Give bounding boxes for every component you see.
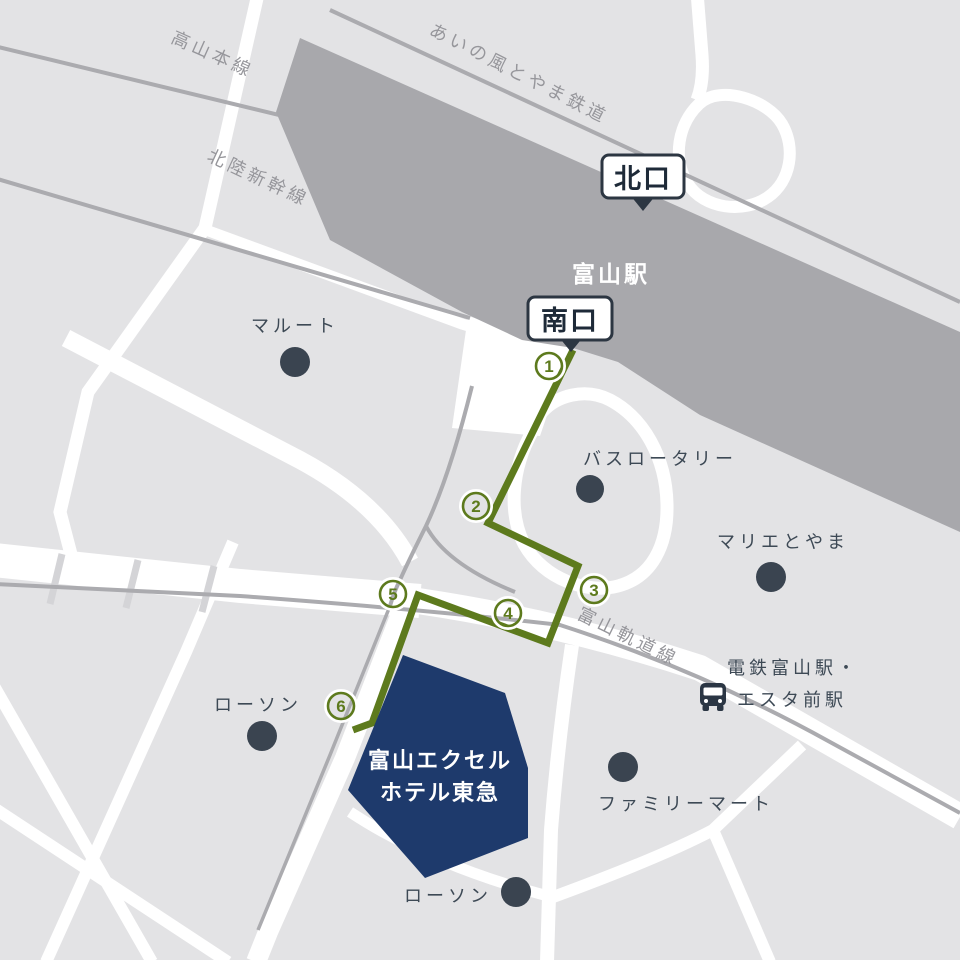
poi-label-lawson-west: ローソン [214,695,302,715]
waypoint-number: 1 [544,357,553,376]
poi-marker-dot [576,475,604,503]
access-map-canvas: 高山本線 北陸新幹線 あいの風とやま鉄道 富山軌道線 富山エクセル ホテル東急 … [0,0,960,960]
station-name: 富山駅 [572,261,650,287]
waypoint-number: 2 [471,497,480,516]
poi-marker-dot [280,347,310,377]
waypoint-number: 6 [336,697,345,716]
waypoint-number: 4 [503,604,513,623]
poi-label-marier: マリエとやま [717,532,849,552]
poi-label-lawson-south: ローソン [404,886,492,906]
waypoint-number: 5 [388,585,397,604]
poi-marker-dot [501,877,531,907]
hotel-name-line2: ホテル東急 [380,780,500,805]
poi-label-familymart: ファミリーマート [598,794,774,814]
north-exit-label: 北口 [614,164,672,194]
access-map: 高山本線 北陸新幹線 あいの風とやま鉄道 富山軌道線 富山エクセル ホテル東急 … [0,0,960,960]
waypoint-number: 3 [589,581,598,600]
poi-label-maroot: マルート [251,316,339,336]
poi-label-dentetsu-line1: 電鉄富山駅・ [727,658,859,678]
poi-marker-dot [756,562,786,592]
south-exit-label: 南口 [541,306,599,336]
poi-label-dentetsu-line2: エスタ前駅 [737,690,847,710]
poi-label-bus-rotary: バスロータリー [583,449,737,469]
poi-marker-dot [608,752,638,782]
hotel-name-line1: 富山エクセル [368,748,512,773]
poi-marker-dot [247,721,277,751]
north-rotary-stem [697,0,702,100]
